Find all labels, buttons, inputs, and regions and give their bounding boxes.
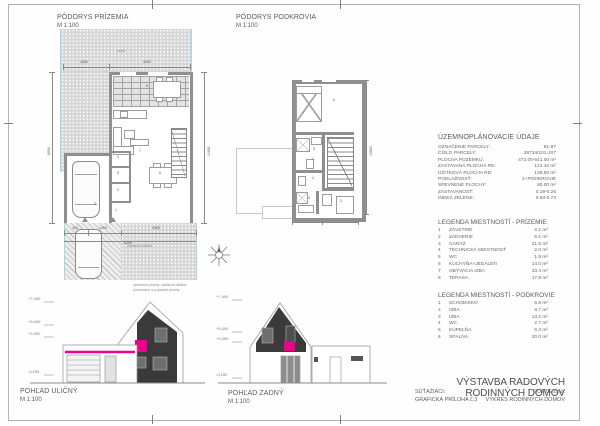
legend-attic-table: 1SCHODISKO6.5 m² 2IZBA9.7 m² 3IZBA13.2 m… xyxy=(438,301,548,342)
legend-attic-title: LEGENDA MIESTNOSTÍ - PODKROVIE xyxy=(438,292,555,299)
dimension-tick xyxy=(121,230,122,236)
dimension-line xyxy=(366,80,367,214)
room-name: WC xyxy=(449,255,534,262)
garage-door xyxy=(67,355,100,382)
room-number-spalna: 6 xyxy=(333,99,335,103)
staircase-direction-line xyxy=(327,137,352,186)
room-no: 8 xyxy=(438,276,449,283)
dimension-tick xyxy=(64,230,65,236)
room-number-zavetrie: 1 xyxy=(115,209,117,213)
level-mark: -0,150 xyxy=(216,373,227,377)
desk xyxy=(298,205,314,213)
wardrobe xyxy=(296,192,308,204)
legend-row: 2ZÁDVERIE5.1 m² xyxy=(438,235,548,242)
room-name: ZÁDVERIE xyxy=(449,235,534,242)
room-name: TECHNICKÁ MIESTNOSŤ xyxy=(449,248,534,255)
room-area: 20.0 m² xyxy=(532,335,548,342)
legend-row: 1SCHODISKO6.5 m² xyxy=(438,301,548,308)
data-label: INDEX ZELENE: xyxy=(438,196,474,202)
level-ticks xyxy=(44,302,54,375)
room-area: 9.7 m² xyxy=(534,308,548,315)
level-ticks xyxy=(232,300,242,378)
partition-wall xyxy=(296,170,322,173)
washbasin xyxy=(311,137,322,145)
dimension-tick xyxy=(358,219,359,225)
dimension-label: 4400 xyxy=(152,227,160,231)
annex-label: GRAFICKÁ PRÍLOHA č.3 xyxy=(415,397,477,403)
legend-row: 8TERASA17.8 m² xyxy=(438,276,548,283)
room-name: TERASA xyxy=(449,276,532,283)
level-mark: +5,400 xyxy=(28,320,40,324)
extension-door xyxy=(330,357,341,383)
street-elevation-scale: M 1:100 xyxy=(20,397,42,404)
window xyxy=(286,326,295,342)
room-number-garaz: 3 xyxy=(94,203,96,207)
attic-plan-scale: M 1:100 xyxy=(236,23,258,30)
room-name: SPÁLŇA xyxy=(449,335,532,342)
room-name: ZÁVETRIE xyxy=(449,228,534,235)
room-no: 6 xyxy=(438,262,449,269)
legend-row: 6SPÁLŇA20.0 m² xyxy=(438,335,548,342)
room-number-wc: 5 xyxy=(117,172,119,176)
staircase-direction-line xyxy=(171,128,185,176)
legend-row: 5KÚPEĽŇA6.3 m² xyxy=(438,328,548,335)
kitchen-counter xyxy=(113,110,147,119)
wall-opening xyxy=(322,78,336,82)
rear-elevation-drawing xyxy=(210,295,395,395)
level-mark: +7,400 xyxy=(28,297,40,301)
coffee-table xyxy=(124,130,135,139)
dimension-line xyxy=(292,222,358,223)
street-elevation-label: POHĽAD ULIČNÝ xyxy=(20,388,78,396)
room-number-schodisko: 1 xyxy=(312,158,314,162)
entry-arrow xyxy=(110,217,116,222)
room-number-izba2: 2 xyxy=(340,200,342,204)
room-area: 33.4 m² xyxy=(532,269,548,276)
entry-door xyxy=(105,356,116,382)
room-no: 6 xyxy=(438,335,449,342)
dimension-tick xyxy=(363,80,369,81)
window xyxy=(153,357,167,370)
kitchen-island xyxy=(130,139,149,146)
bed-pillow xyxy=(296,86,322,94)
dimension-label: 8000 xyxy=(48,147,52,155)
room-number-technicka: 4 xyxy=(117,156,119,160)
room-number-obyvacia: 7 xyxy=(139,150,141,154)
partition-wall xyxy=(129,151,131,203)
dimension-label: 6200 xyxy=(124,242,132,246)
legend-row: 1ZÁVETRIE2.1 m² xyxy=(438,228,548,235)
fold-mark xyxy=(340,415,341,424)
dimension-line xyxy=(63,67,190,68)
front-yard xyxy=(121,223,197,280)
dimension-tick xyxy=(49,223,55,224)
dimension-label: 11600 xyxy=(208,147,212,156)
window xyxy=(155,328,167,342)
room-no: 1 xyxy=(438,228,449,235)
room-area: 5.1 m² xyxy=(534,235,548,242)
room-name: KÚPEĽŇA xyxy=(449,328,534,335)
urban-data-table: OZNAČENIE PARCELY:81-87 ČÍSLO PARCELY:28… xyxy=(438,145,556,203)
competitor-label: SÚŤAŽIACI: xyxy=(415,389,445,395)
chair xyxy=(153,183,161,188)
dimension-tick xyxy=(109,64,110,70)
room-no: 1 xyxy=(438,301,449,308)
wall-opening xyxy=(120,72,136,75)
legend-row: 2IZBA9.7 m² xyxy=(438,308,548,315)
dimension-label: 1800 xyxy=(80,61,88,65)
terrace-roof-outline xyxy=(236,148,294,214)
window xyxy=(137,357,146,368)
partition-wall xyxy=(322,188,354,191)
car-rear-window xyxy=(78,267,99,268)
car-in-garage xyxy=(72,161,100,218)
vent xyxy=(314,357,318,362)
toilet xyxy=(298,176,306,186)
dimension-tick xyxy=(190,64,191,70)
desk xyxy=(322,194,332,206)
chair xyxy=(156,97,163,102)
partition-wall xyxy=(109,182,129,184)
data-row: INDEX ZELENE:0.63-0.73 xyxy=(438,196,556,202)
car-on-driveway xyxy=(75,229,102,279)
title-block-row: GRAFICKÁ PRÍLOHA č.3 VÝKRES RODINNÝCH DO… xyxy=(415,397,565,403)
room-name: KUCHYŇA+JEDÁLEŇ xyxy=(449,262,532,269)
dimension-label: 420 xyxy=(72,227,78,231)
dimension-tick xyxy=(201,72,207,73)
room-number-kuchyna: 6 xyxy=(159,172,161,176)
room-name: OBÝVACIA IZBA xyxy=(449,269,532,276)
chair xyxy=(153,163,161,168)
room-number-zadverie: 2 xyxy=(117,189,119,193)
room-number-kupelna: 5 xyxy=(313,148,315,152)
fold-mark xyxy=(340,0,341,9)
room-name: IZBA xyxy=(449,308,534,315)
partition-wall xyxy=(322,135,325,191)
room-name: SCHODISKO xyxy=(449,301,534,308)
bed xyxy=(336,196,354,214)
room-area: 17.8 m² xyxy=(532,276,548,283)
compass-icon xyxy=(207,243,231,267)
legend-ground-table: 1ZÁVETRIE2.1 m² 2ZÁDVERIE5.1 m² 3GARÁŽ21… xyxy=(438,228,548,282)
room-number-wc: 4 xyxy=(312,177,314,181)
extension-window xyxy=(351,356,363,361)
level-mark: +5,400 xyxy=(216,327,228,331)
competitor-value: GUTTE s.r.o. xyxy=(533,389,565,395)
dimension-label: 1400 xyxy=(99,227,107,231)
car-windshield xyxy=(75,174,97,175)
room-name: IZBA xyxy=(449,315,532,322)
room-no: 5 xyxy=(438,328,449,335)
partition-wall xyxy=(296,132,354,135)
wall-opening xyxy=(302,78,314,82)
chair xyxy=(166,77,173,82)
dimension-tick xyxy=(363,214,369,215)
drawing-sheet: PÔDORYS PRÍZEMIA M 1:100 zeleň 1800 4400… xyxy=(0,0,600,426)
dimension-line xyxy=(64,233,196,234)
dimension-tick xyxy=(63,64,64,70)
plan-note-line2: pochôdzne a pojazdné plochy xyxy=(133,289,179,293)
room-no: 2 xyxy=(438,235,449,242)
fold-mark xyxy=(4,123,13,124)
dimension-tick xyxy=(88,230,89,236)
fold-mark xyxy=(152,0,153,9)
terrace-roof-step xyxy=(262,206,294,219)
chair xyxy=(164,183,172,188)
garden-label: zeleň xyxy=(117,50,125,54)
room-number-izba3: 3 xyxy=(308,197,310,201)
attic-plan-title: PÔDORYS PODKROVIA xyxy=(236,14,316,22)
room-no: 2 xyxy=(438,308,449,315)
project-title: VÝSTAVBA RADOVÝCH RODINNÝCH DOMOV xyxy=(405,377,565,399)
room-area: 1.9 m² xyxy=(534,255,548,262)
terrace-table xyxy=(153,81,181,98)
dimension-label: 4400 xyxy=(143,61,151,65)
room-no: 5 xyxy=(438,255,449,262)
dimension-label: 10800 xyxy=(370,146,374,156)
room-area: 6.3 m² xyxy=(534,328,548,335)
urban-data-title: ÚZEMNOPLÁNOVACIE ÚDAJE xyxy=(438,134,540,142)
window xyxy=(262,328,273,343)
rear-elevation-label: POHĽAD ZADNÝ xyxy=(228,390,284,398)
room-no: 7 xyxy=(438,269,449,276)
chair xyxy=(166,97,173,102)
kitchen-sink xyxy=(120,111,128,118)
magenta-accent-panel xyxy=(284,341,295,351)
chair xyxy=(156,77,163,82)
dimension-tick xyxy=(49,72,55,73)
legend-row: 5WC1.9 m² xyxy=(438,255,548,262)
level-mark: +3,450 xyxy=(28,332,40,336)
room-area: 6.5 m² xyxy=(534,301,548,308)
fold-mark xyxy=(573,123,582,124)
entry-arrow xyxy=(82,217,88,222)
drawing-name: VÝKRES RODINNÝCH DOMOV xyxy=(486,397,565,403)
rear-elevation-scale: M 1:100 xyxy=(228,399,250,406)
partition-wall xyxy=(109,201,131,203)
wall-opening xyxy=(148,72,168,75)
street-elevation-drawing xyxy=(18,295,213,395)
dimension-tick xyxy=(201,223,207,224)
data-value: 0.63-0.73 xyxy=(536,196,556,202)
dimension-tick xyxy=(292,219,293,225)
legend-row: 7OBÝVACIA IZBA33.4 m² xyxy=(438,269,548,276)
level-mark: -0,150 xyxy=(28,370,39,374)
title-block-row: SÚŤAŽIACI: GUTTE s.r.o. xyxy=(415,389,565,395)
dimension-line xyxy=(204,72,205,223)
partition-wall xyxy=(109,151,131,153)
dimension-tick xyxy=(196,230,197,236)
room-number-terasa: 8 xyxy=(146,85,148,89)
bathtub xyxy=(296,138,310,152)
legend-row: 6KUCHYŇA+JEDÁLEŇ14.0 m² xyxy=(438,262,548,269)
level-mark: +3,450 xyxy=(216,337,228,341)
dimension-line xyxy=(52,72,53,223)
ground-plan-title: PÔDORYS PRÍZEMIA xyxy=(57,14,128,22)
paving-label: zámková dlažba xyxy=(127,245,152,249)
legend-ground-title: LEGENDA MIESTNOSTÍ - PRÍZEMIE xyxy=(438,219,547,226)
glazed-door xyxy=(281,356,300,383)
partition-wall xyxy=(109,166,129,168)
level-mark: +7,400 xyxy=(216,295,228,299)
fold-mark xyxy=(152,415,153,424)
partition-wall xyxy=(316,191,319,214)
dimension-tick xyxy=(322,219,323,225)
garden-back xyxy=(60,29,192,72)
room-area: 14.0 m² xyxy=(532,262,548,269)
room-area: 2.1 m² xyxy=(534,228,548,235)
